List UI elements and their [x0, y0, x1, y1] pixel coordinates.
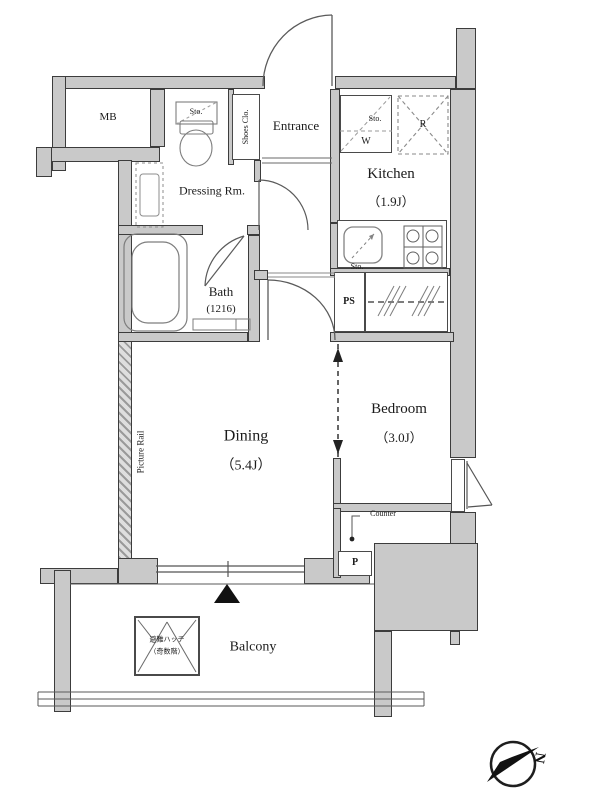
washer-storage-label: Sto.: [369, 115, 382, 123]
dressing-room-label: Dressing Rm.: [179, 185, 245, 198]
bedroom-size-label: （3.0J）: [375, 431, 422, 445]
picture-rail-label: Picture Rail: [136, 431, 145, 474]
balcony-window: [156, 561, 304, 577]
compass-icon: N: [487, 742, 548, 786]
slide-arrow-up: [333, 348, 343, 362]
escape-hatch-label-1: 避難ハッチ: [150, 636, 185, 643]
bathtub-icon: [124, 234, 250, 331]
dining-door-arc: [268, 280, 335, 340]
entrance-door: [263, 15, 332, 86]
sink-storage-label: Sto.: [351, 263, 364, 271]
shoes-closet-label: Shoes Clo.: [242, 110, 250, 145]
dining-door: [268, 273, 335, 340]
sliding-partition: [333, 344, 343, 458]
bath-door: [205, 236, 244, 286]
sink-icon: [344, 227, 382, 263]
counter-icon: [350, 516, 360, 541]
balcony-label: Balcony: [230, 641, 277, 656]
washer-label: W: [361, 137, 370, 148]
washing-machine-icon: [136, 163, 163, 227]
escape-hatch-lines: [138, 620, 196, 672]
ps-label: PS: [343, 297, 355, 308]
bedroom-window-flap: [467, 461, 492, 509]
kitchen-label: Kitchen: [367, 167, 414, 183]
escape-hatch-label-2: （奇数階）: [150, 648, 185, 655]
stove-icon: [404, 226, 442, 268]
toilet-storage-label: Sto.: [190, 108, 203, 116]
entrance-label: Entrance: [273, 119, 319, 133]
bath-size-label: (1216): [206, 304, 235, 316]
kitchen-size-label: （1.9J）: [367, 195, 414, 209]
dressing-door-arc: [259, 180, 308, 230]
bath-door-leaf: [205, 236, 244, 286]
bath-label: Bath: [209, 285, 234, 299]
dining-size-label: （5.4J）: [221, 460, 272, 475]
slide-arrow-down: [333, 440, 343, 454]
fridge-label: R: [420, 120, 427, 131]
window-direction-marker: [214, 584, 240, 603]
mb-label: MB: [99, 112, 116, 124]
floor-plan: N MB Sto. Shoes Clo. Entrance Dressing R…: [0, 0, 600, 800]
entrance-step: [262, 158, 332, 163]
pipe-hatch-lines: [368, 286, 446, 316]
dining-label: Dining: [224, 429, 268, 446]
counter-label: Counter: [370, 510, 396, 518]
entrance-door-arc: [263, 15, 332, 86]
dressing-door: [259, 180, 308, 230]
bedroom-label: Bedroom: [371, 402, 427, 418]
porch-label: P: [352, 558, 358, 569]
